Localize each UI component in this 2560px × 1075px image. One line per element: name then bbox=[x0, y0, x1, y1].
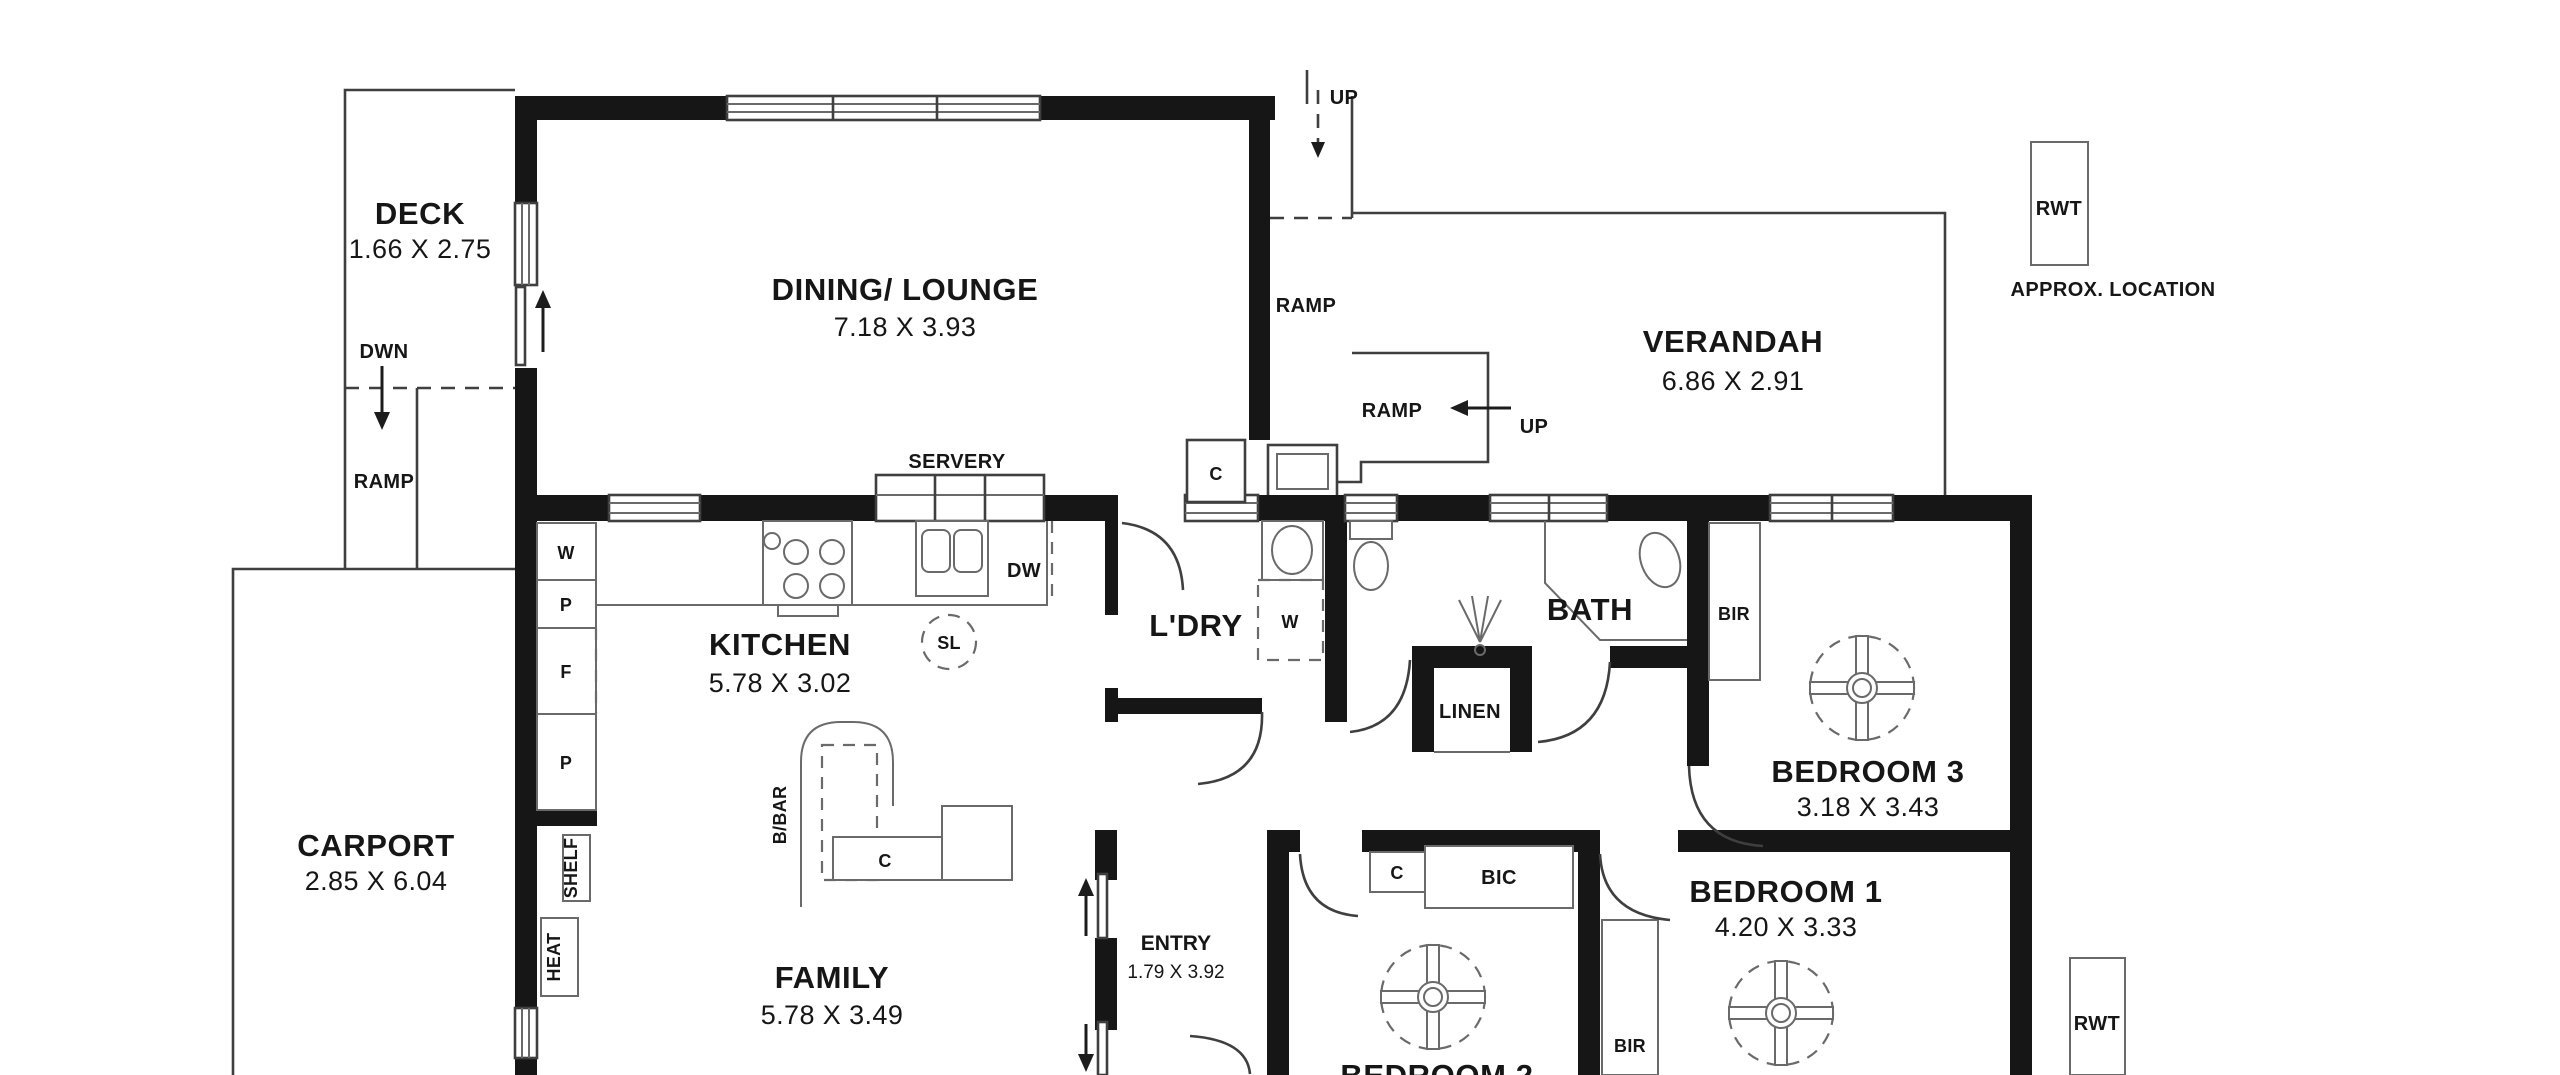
bedroom3-label: BEDROOM 3 bbox=[1771, 754, 1964, 789]
rwt-top-label: RWT bbox=[2036, 198, 2082, 220]
up-top-label: UP bbox=[1330, 87, 1359, 109]
breakfast-bar bbox=[801, 722, 1012, 907]
dining-dims: 7.18 X 3.93 bbox=[834, 312, 977, 342]
washer-label: W bbox=[1281, 612, 1298, 632]
up-mid-label: UP bbox=[1520, 416, 1549, 438]
verandah-dims: 6.86 X 2.91 bbox=[1662, 366, 1805, 396]
floorplan-canvas: DECK 1.66 X 2.75 DINING/ LOUNGE 7.18 X 3… bbox=[0, 0, 2560, 1075]
bedroom3-dims: 3.18 X 3.43 bbox=[1797, 792, 1940, 822]
linen-label: LINEN bbox=[1439, 701, 1501, 723]
fan-icon-bedroom3 bbox=[1810, 636, 1914, 740]
bbar-label: B/BAR bbox=[770, 786, 790, 845]
servery-bench bbox=[876, 475, 1044, 521]
sink bbox=[916, 521, 988, 596]
family-label: FAMILY bbox=[775, 960, 889, 995]
entry-label: ENTRY bbox=[1141, 932, 1211, 955]
fan-icon-bedroom2 bbox=[1381, 945, 1485, 1049]
window-deck-wall bbox=[515, 203, 537, 285]
carport-outline bbox=[233, 569, 515, 1075]
window-family-wall bbox=[515, 1008, 537, 1058]
rwt-bottom-label: RWT bbox=[2074, 1013, 2120, 1035]
dining-door-arrow-icon bbox=[535, 290, 551, 352]
window-bath bbox=[1490, 495, 1607, 521]
window-kitchen bbox=[609, 495, 700, 521]
dining-label: DINING/ LOUNGE bbox=[772, 272, 1039, 307]
cupboard-f-label: F bbox=[560, 662, 571, 682]
verandah-label: VERANDAH bbox=[1643, 324, 1823, 359]
toilet bbox=[1350, 521, 1392, 590]
dwn-label: DWN bbox=[360, 341, 409, 363]
window-top-wall bbox=[727, 96, 1040, 120]
carport-label: CARPORT bbox=[297, 828, 454, 863]
ldry-label: L'DRY bbox=[1149, 608, 1243, 643]
bath-label: BATH bbox=[1547, 592, 1633, 627]
cooktop bbox=[763, 521, 852, 616]
laundry-trough bbox=[1258, 521, 1323, 660]
family-dims: 5.78 X 3.49 bbox=[761, 1000, 904, 1030]
bedroom1-label: BEDROOM 1 bbox=[1689, 874, 1882, 909]
verandah-pier bbox=[1268, 445, 1337, 498]
cupboard-p1-label: P bbox=[560, 595, 572, 615]
entry-arrow-down-icon bbox=[1078, 1024, 1094, 1072]
ramp-mid-label: RAMP bbox=[1362, 400, 1423, 422]
bir-bed1-label: BIR bbox=[1614, 1036, 1646, 1056]
ramp-upper-label: RAMP bbox=[1276, 295, 1337, 317]
c-bed2-label: C bbox=[1390, 863, 1403, 883]
dwn-arrow-icon bbox=[374, 366, 390, 430]
bic-label: BIC bbox=[1481, 867, 1517, 889]
cupboard-p2-label: P bbox=[560, 753, 572, 773]
up-mid-arrow-icon bbox=[1450, 400, 1511, 416]
deck-dims: 1.66 X 2.75 bbox=[349, 234, 492, 264]
sliding-door-dining bbox=[516, 287, 525, 365]
entry-arrow-up-icon bbox=[1078, 878, 1094, 936]
deck-outline bbox=[345, 90, 515, 569]
dw-label: DW bbox=[1007, 560, 1041, 582]
cupboard-w-label: W bbox=[557, 543, 574, 563]
heat-label: HEAT bbox=[544, 933, 564, 982]
c-kitchen-label: C bbox=[878, 851, 891, 871]
shelf-label: SHELF bbox=[561, 838, 581, 899]
servery-label: SERVERY bbox=[908, 451, 1006, 473]
sl-label: SL bbox=[937, 633, 961, 653]
deck-label: DECK bbox=[375, 196, 465, 231]
verandah-outline bbox=[1270, 96, 1945, 495]
window-bedroom3 bbox=[1770, 495, 1893, 521]
bir-bedroom3-box bbox=[1709, 523, 1760, 680]
fan-icon-bedroom1 bbox=[1729, 961, 1833, 1065]
bedroom1-dims: 4.20 X 3.33 bbox=[1715, 912, 1858, 942]
c-dining-label: C bbox=[1209, 464, 1222, 484]
approx-location-label: APPROX. LOCATION bbox=[2011, 279, 2216, 301]
kitchen-label: KITCHEN bbox=[709, 627, 851, 662]
up-top-arrow-icon bbox=[1307, 70, 1325, 158]
ramp-deck-label: RAMP bbox=[354, 471, 415, 493]
bedroom2-label: BEDROOM 2 bbox=[1340, 1058, 1533, 1075]
carport-dims: 2.85 X 6.04 bbox=[305, 866, 448, 896]
entry-dims: 1.79 X 3.92 bbox=[1127, 962, 1224, 983]
bir-bed3-label: BIR bbox=[1718, 604, 1750, 624]
window-wc bbox=[1345, 495, 1397, 521]
kitchen-dims: 5.78 X 3.02 bbox=[709, 668, 852, 698]
